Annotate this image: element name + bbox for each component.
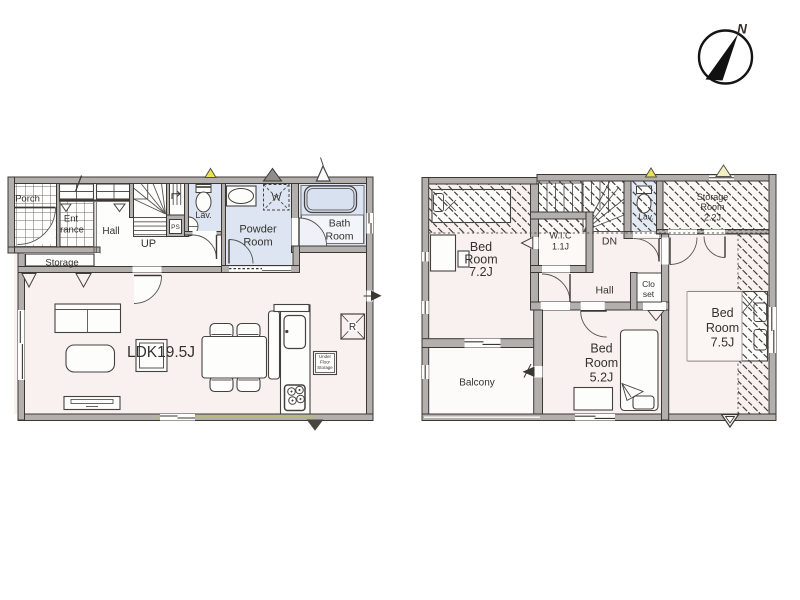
- svg-text:Bath: Bath: [329, 218, 351, 230]
- svg-text:2.2J: 2.2J: [704, 213, 721, 223]
- svg-text:Hall: Hall: [595, 285, 613, 297]
- svg-text:Storage: Storage: [45, 258, 78, 269]
- svg-text:Room: Room: [706, 321, 739, 335]
- svg-text:Bed: Bed: [590, 342, 612, 356]
- svg-text:Balcony: Balcony: [459, 378, 495, 389]
- svg-text:Room: Room: [585, 356, 618, 370]
- svg-text:7.2J: 7.2J: [469, 265, 493, 279]
- svg-text:Room: Room: [243, 237, 272, 249]
- svg-text:Under: Under: [319, 354, 331, 359]
- svg-text:Storage: Storage: [697, 192, 729, 202]
- svg-text:UP: UP: [141, 238, 156, 250]
- svg-text:Porch: Porch: [15, 194, 40, 205]
- svg-text:R: R: [349, 322, 356, 333]
- svg-text:Floor: Floor: [320, 360, 331, 365]
- svg-text:Clo: Clo: [642, 279, 655, 289]
- svg-text:LDK19.5J: LDK19.5J: [127, 344, 195, 361]
- svg-text:W: W: [272, 193, 282, 204]
- svg-text:Hall: Hall: [102, 226, 119, 237]
- svg-text:5.2J: 5.2J: [590, 371, 614, 385]
- svg-text:Ent: Ent: [64, 214, 79, 225]
- svg-text:7.5J: 7.5J: [711, 336, 735, 350]
- svg-text:Storage: Storage: [317, 365, 333, 370]
- svg-text:Bed: Bed: [711, 306, 733, 320]
- svg-text:DN: DN: [602, 236, 617, 248]
- svg-text:1.1J: 1.1J: [552, 242, 569, 252]
- svg-text:rance: rance: [60, 225, 84, 236]
- svg-text:Room: Room: [700, 202, 724, 212]
- svg-text:set: set: [643, 289, 655, 299]
- svg-text:Lav.: Lav.: [195, 210, 211, 220]
- svg-text:W.I.C: W.I.C: [550, 231, 572, 241]
- svg-text:Lav.: Lav.: [638, 212, 653, 222]
- svg-text:N: N: [737, 22, 747, 37]
- svg-text:Powder: Powder: [239, 224, 277, 236]
- svg-text:Room: Room: [325, 231, 353, 243]
- svg-text:PS: PS: [171, 224, 180, 231]
